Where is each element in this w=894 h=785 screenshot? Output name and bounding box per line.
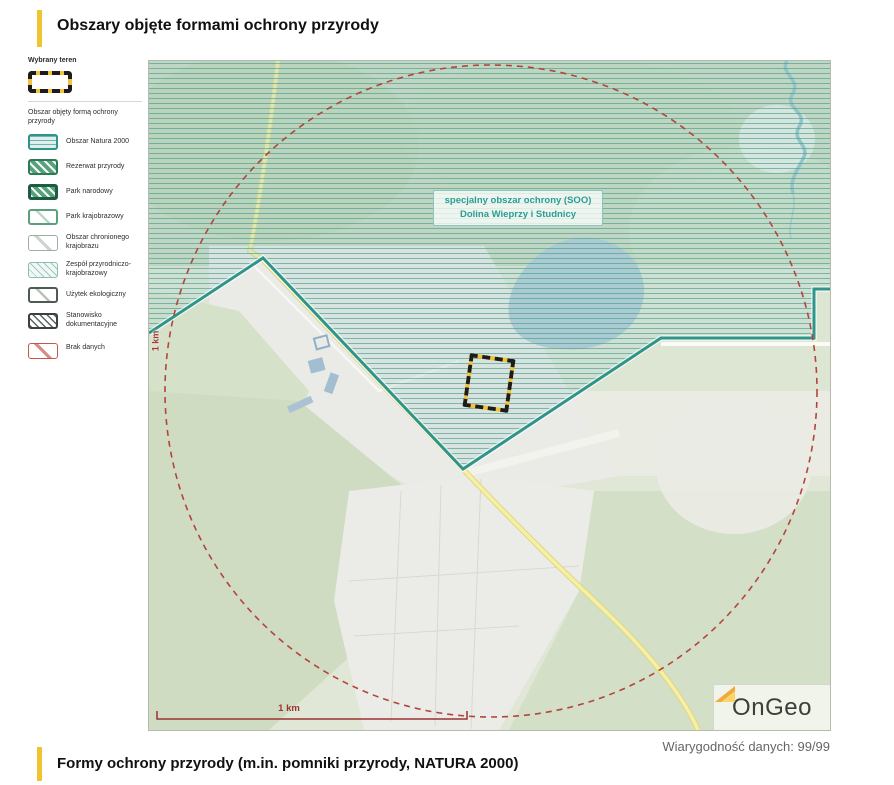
protected-area-label-line1: specjalny obszar ochrony (SOO) [434,194,602,208]
park-krajobrazowy-swatch [28,209,58,225]
legend-item-label: Obszar Natura 2000 [66,138,129,147]
selected-area-swatch-dashed-border [28,71,72,93]
legend-group-heading: Obszar objęty formą ochrony przyrody [28,109,142,127]
legend-item-uzytek-ekologiczny: Użytek ekologiczny [28,287,142,303]
uzytek-ekologiczny-swatch [28,287,58,303]
rezerwat-przyrody-swatch [28,159,58,175]
ongeo-logo-text: OnGeo [732,694,812,722]
legend-item-park-narodowy: Park narodowy [28,184,142,200]
legend-item-label: Obszar chronionego krajobrazu [66,234,142,252]
legend-item-zespol-przyrodniczo-krajobrazowy: Zespół przyrodniczo-krajobrazowy [28,261,142,279]
legend-item-park-krajobrazowy: Park krajobrazowy [28,209,142,225]
stanowisko-dokumentacyjne-swatch [28,313,58,329]
map-canvas: specjalny obszar ochrony (SOO) Dolina Wi… [148,60,831,731]
scale-bar-label: 1 km [259,703,319,714]
header-accent-bar [37,10,42,47]
legend-item-obszar-chronionego-krajobrazu: Obszar chronionego krajobrazu [28,234,142,252]
ongeo-logo: OnGeo [713,684,830,730]
legend-item-label: Park narodowy [66,188,113,197]
legend-item-label: Stanowisko dokumentacyjne [66,312,142,330]
legend-item-label: Brak danych [66,344,105,353]
footer-title: Formy ochrony przyrody (m.in. pomniki pr… [57,755,518,772]
protected-area-label-line2: Dolina Wieprzy i Studnicy [434,208,602,222]
page-title: Obszary objęte formami ochrony przyrody [57,17,379,35]
map-legend: Wybrany teren Obszar objęty formą ochron… [28,57,142,368]
ongeo-logo-icon [714,685,736,703]
legend-divider [28,101,142,102]
brak-danych-swatch [28,343,58,359]
obszar-chronionego-krajobrazu-swatch [28,235,58,251]
protected-area-label: specjalny obszar ochrony (SOO) Dolina Wi… [433,190,603,226]
park-narodowy-swatch [28,184,58,200]
legend-item-label: Zespół przyrodniczo-krajobrazowy [66,261,142,279]
buffer-radius-label: 1 km [150,331,160,352]
selected-parcel-dashed-border [462,353,515,413]
selected-parcel [462,353,515,413]
legend-item-label: Użytek ekologiczny [66,291,126,300]
zespol-przyrodniczo-krajobrazowy-swatch [28,262,58,278]
data-reliability: Wiarygodność danych: 99/99 [662,739,830,754]
selected-area-swatch [28,71,72,93]
natura-2000-swatch [28,134,58,150]
legend-item-natura-2000: Obszar Natura 2000 [28,134,142,150]
legend-item-label: Rezerwat przyrody [66,163,124,172]
legend-item-stanowisko-dokumentacyjne: Stanowisko dokumentacyjne [28,312,142,330]
legend-item-label: Park krajobrazowy [66,213,124,222]
legend-selected-heading: Wybrany teren [28,57,142,66]
legend-item-rezerwat-przyrody: Rezerwat przyrody [28,159,142,175]
footer-accent-bar [37,747,42,781]
legend-item-brak-danych: Brak danych [28,339,142,359]
